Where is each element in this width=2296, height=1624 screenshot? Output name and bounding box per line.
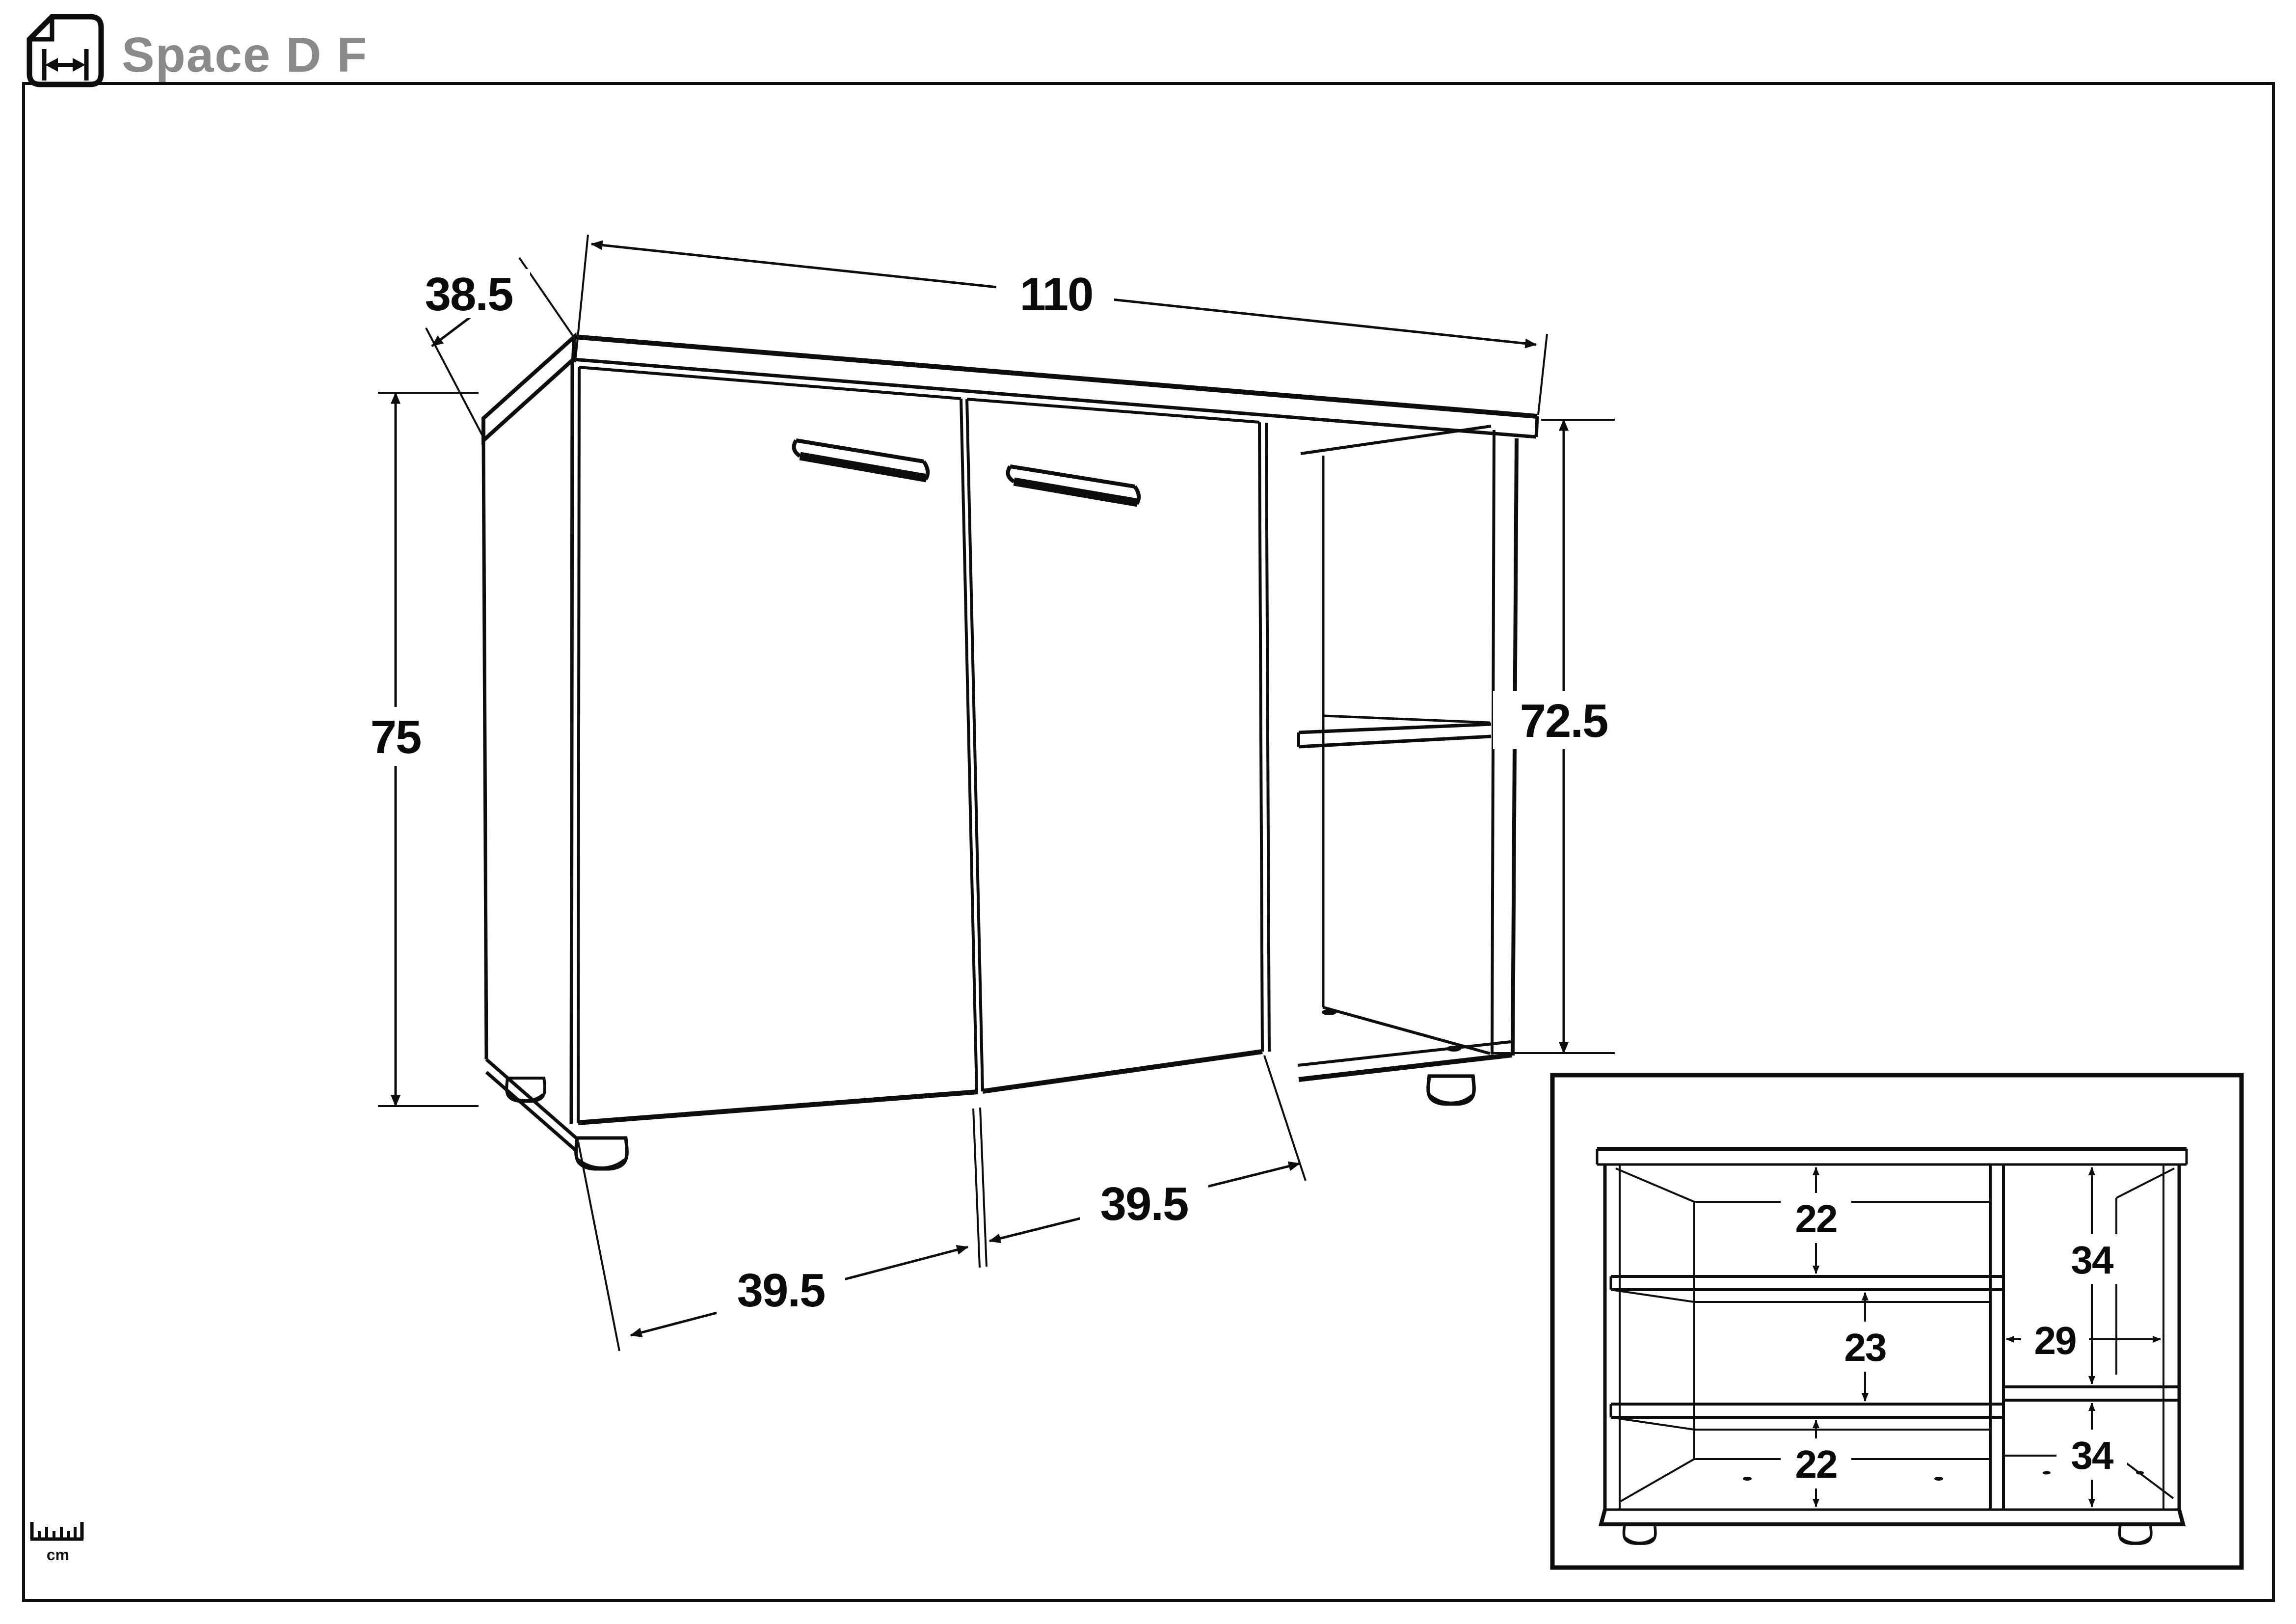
inset-dim-middle-left-23: 23 xyxy=(1830,1293,1900,1401)
inset-dim-top-right-label: 34 xyxy=(2071,1238,2114,1282)
inset-dim-top-left-label: 22 xyxy=(1795,1197,1837,1241)
dim-door-right-label: 39.5 xyxy=(1100,1178,1188,1230)
right-door-handle xyxy=(1008,466,1139,504)
inset-dim-right-width-29: 29 xyxy=(2006,1314,2161,1365)
inset-dim-bottom-right-label: 34 xyxy=(2071,1434,2114,1477)
header: Space D F xyxy=(29,17,368,84)
inset-dim-bottom-right-34: 34 xyxy=(2056,1403,2127,1507)
dimension-width-110: 110 xyxy=(575,235,1547,415)
dim-height-label: 75 xyxy=(371,711,421,763)
unit-legend: cm xyxy=(30,1522,83,1564)
ruler-icon xyxy=(30,1522,83,1539)
inset-dim-bottom-left-22: 22 xyxy=(1781,1420,1851,1507)
inset-dim-bottom-left-label: 22 xyxy=(1795,1442,1837,1486)
dimension-door-left-39-5: 39.5 xyxy=(578,1108,987,1351)
dim-width-label: 110 xyxy=(1020,268,1093,321)
dimension-height-75: 75 xyxy=(361,393,479,1106)
cabinet-perspective-drawing xyxy=(483,337,1537,1169)
drawing-frame xyxy=(24,83,2273,1600)
unit-label: cm xyxy=(47,1546,69,1564)
dim-depth-label: 38.5 xyxy=(425,268,513,321)
inset-dim-middle-left-label: 23 xyxy=(1844,1326,1886,1369)
page-title: Space D F xyxy=(122,27,368,82)
inset-feet xyxy=(1624,1524,2151,1543)
inset-dim-right-width-label: 29 xyxy=(2034,1319,2076,1362)
technical-drawing-page: Space D F xyxy=(0,0,2296,1624)
dim-side-height-label: 72.5 xyxy=(1520,695,1608,747)
inset-front-view: 22 23 22 34 29 34 xyxy=(1552,1075,2242,1568)
inset-dim-top-left-22: 22 xyxy=(1781,1167,1851,1273)
width-dimension-page-icon xyxy=(29,17,101,84)
dim-door-left-label: 39.5 xyxy=(737,1264,825,1317)
left-door-handle xyxy=(794,440,928,479)
